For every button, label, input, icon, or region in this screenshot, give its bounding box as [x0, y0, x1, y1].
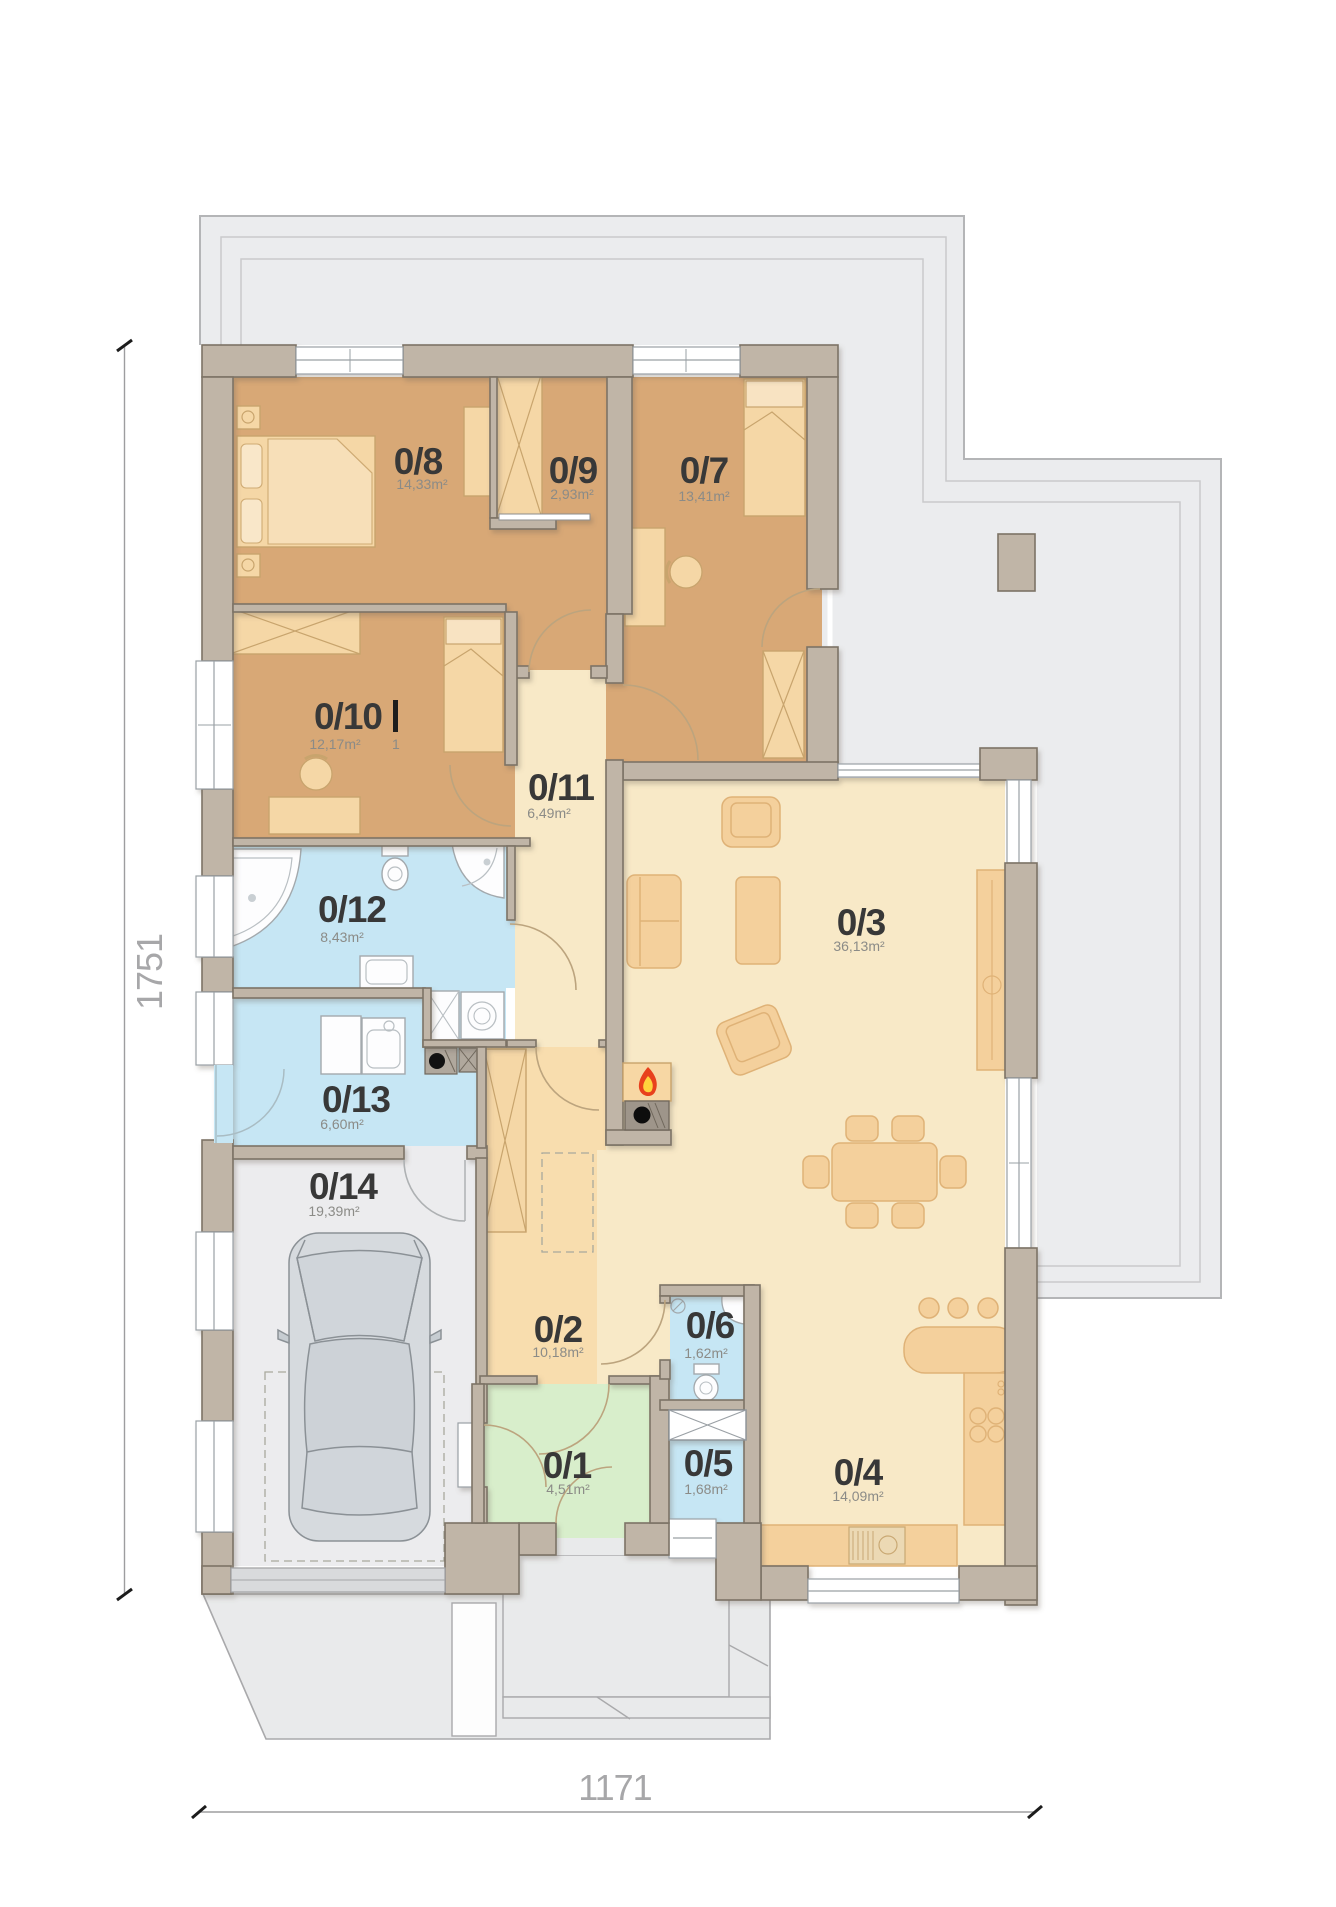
svg-text:0/4: 0/4: [834, 1452, 884, 1493]
svg-text:13,41m²: 13,41m²: [678, 488, 730, 504]
svg-text:2,93m²: 2,93m²: [550, 486, 594, 502]
svg-text:12,17m²: 12,17m²: [309, 736, 361, 752]
svg-text:19,39m²: 19,39m²: [308, 1203, 360, 1219]
svg-text:0/5: 0/5: [684, 1443, 733, 1484]
svg-text:0/7: 0/7: [680, 450, 728, 491]
svg-text:36,13m²: 36,13m²: [833, 938, 885, 954]
svg-text:1,68m²: 1,68m²: [684, 1481, 728, 1497]
svg-text:8,43m²: 8,43m²: [320, 929, 364, 945]
svg-text:1: 1: [392, 736, 400, 752]
svg-text:1751: 1751: [129, 934, 170, 1010]
svg-text:10,18m²: 10,18m²: [532, 1344, 584, 1360]
svg-text:1171: 1171: [578, 1767, 651, 1808]
svg-text:6,60m²: 6,60m²: [320, 1116, 364, 1132]
svg-text:0/9: 0/9: [549, 450, 598, 491]
svg-text:4,51m²: 4,51m²: [546, 1481, 590, 1497]
svg-text:0/6: 0/6: [686, 1305, 735, 1346]
svg-text:1,62m²: 1,62m²: [684, 1345, 728, 1361]
svg-text:0/11: 0/11: [528, 767, 594, 808]
svg-text:0/13: 0/13: [322, 1079, 390, 1120]
svg-text:6,49m²: 6,49m²: [527, 805, 571, 821]
svg-text:0/12: 0/12: [318, 889, 386, 930]
svg-text:14,09m²: 14,09m²: [832, 1488, 884, 1504]
svg-text:0/14: 0/14: [309, 1166, 378, 1207]
svg-text:0/10: 0/10: [314, 696, 382, 737]
svg-text:0/1: 0/1: [543, 1445, 592, 1486]
svg-text:14,33m²: 14,33m²: [396, 476, 448, 492]
svg-text:0/3: 0/3: [837, 902, 886, 943]
